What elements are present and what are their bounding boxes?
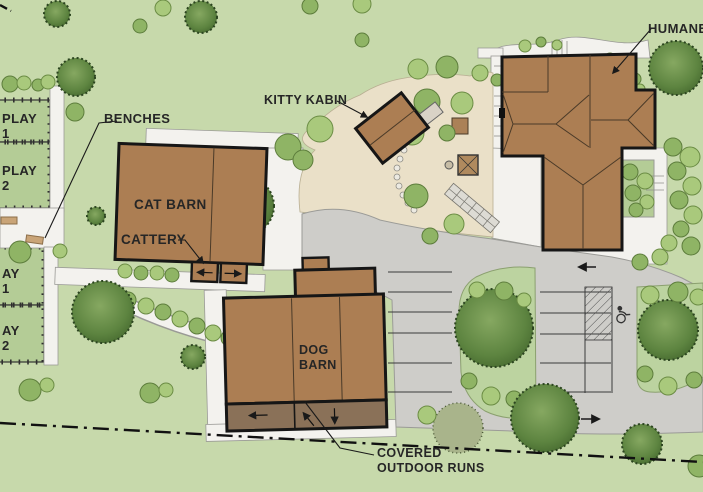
- tree-shrub: [637, 366, 653, 382]
- tree-canopy: [44, 1, 70, 27]
- label-cat-barn: CAT BARN: [134, 197, 207, 212]
- tree-shrub: [472, 65, 488, 81]
- tree-shrub: [2, 76, 18, 92]
- tree-shrub: [461, 373, 477, 389]
- tree-shrub: [41, 75, 55, 89]
- tree-shrub: [641, 286, 659, 304]
- tree-shrub: [625, 185, 641, 201]
- tree-shrub: [155, 304, 171, 320]
- tree-shrub: [552, 40, 562, 50]
- label-covered-outdoor-runs: COVEREDOUTDOOR RUNS: [377, 446, 485, 476]
- tree-shrub: [637, 173, 653, 189]
- tree-shrub: [9, 241, 31, 263]
- site-plan: HUMANE KITTY KABIN CAT BARN CATTERY DOGB…: [0, 0, 703, 492]
- tree-shrub: [159, 383, 173, 397]
- site-plan-drawing: [0, 0, 703, 492]
- tree-shrub: [422, 228, 438, 244]
- tree-shrub: [66, 103, 84, 121]
- tree-shrub: [408, 59, 428, 79]
- tree-shrub: [205, 325, 221, 341]
- tree-shrub: [659, 377, 677, 395]
- tree-shrub: [118, 264, 132, 278]
- label-play-yard-4: AY2: [2, 323, 20, 353]
- tree-canopy: [57, 58, 95, 96]
- label-benches: BENCHES: [104, 111, 170, 126]
- tree-shrub: [418, 406, 436, 424]
- tree-shrub: [536, 37, 546, 47]
- tree-shrub: [302, 0, 318, 14]
- tree-canopy: [72, 281, 134, 343]
- tree-shrub: [670, 191, 688, 209]
- tree-shrub: [684, 206, 702, 224]
- tree-canopy: [181, 345, 205, 369]
- tree-shrub: [150, 266, 164, 280]
- label-play-yard-1: PLAY1: [2, 111, 37, 141]
- tree-shrub: [469, 282, 485, 298]
- tree-shrub: [451, 92, 473, 114]
- tree-shrub: [682, 237, 700, 255]
- label-humane-society: HUMANE: [648, 21, 703, 36]
- tree-canopy: [511, 384, 579, 452]
- tree-shrub: [40, 378, 54, 392]
- tree-shrub: [165, 268, 179, 282]
- tree-shrub: [307, 116, 333, 142]
- tree-canopy: [649, 41, 703, 95]
- tree-shrub: [293, 150, 313, 170]
- tree-shrub: [155, 0, 171, 16]
- label-play-yard-2: PLAY2: [2, 163, 37, 193]
- tree-shrub: [482, 387, 500, 405]
- tree-shrub: [439, 125, 455, 141]
- tree-shrub: [632, 254, 648, 270]
- label-cattery: CATTERY: [121, 232, 186, 247]
- tree-shrub: [673, 221, 689, 237]
- label-kitty-kabin: KITTY KABIN: [264, 93, 347, 108]
- tree-shrub: [622, 164, 638, 180]
- tree-shrub: [661, 235, 677, 251]
- label-dog-barn: DOGBARN: [299, 343, 337, 373]
- tree-shrub: [19, 379, 41, 401]
- tree-shrub: [138, 298, 154, 314]
- tree-shrub: [133, 19, 147, 33]
- tree-shrub: [436, 56, 458, 78]
- tree-shrub: [444, 214, 464, 234]
- tree-shrub: [53, 244, 67, 258]
- tree-shrub: [690, 289, 703, 305]
- tree-shrub: [519, 40, 531, 52]
- tree-shrub: [664, 138, 682, 156]
- tree-canopy: [185, 1, 217, 33]
- tree-shrub: [629, 203, 643, 217]
- tree-shrub: [686, 372, 702, 388]
- tree-shrub: [189, 318, 205, 334]
- tree-shrub: [404, 184, 428, 208]
- tree-shrub: [140, 383, 160, 403]
- label-play-yard-3: AY1: [2, 266, 20, 296]
- tree-shrub: [134, 266, 148, 280]
- tree-shrub: [683, 177, 701, 195]
- tree-canopy: [87, 207, 105, 225]
- tree-shrub: [172, 311, 188, 327]
- tree-shrub: [495, 282, 513, 300]
- tree-shrub: [668, 162, 686, 180]
- tree-shrub: [355, 33, 369, 47]
- tree-shrub: [17, 76, 31, 90]
- tree-canopy: [638, 300, 698, 360]
- tree-shrub: [517, 293, 531, 307]
- tree-shrub: [353, 0, 371, 13]
- tree-shrub: [652, 249, 668, 265]
- tree-shrub: [668, 282, 688, 302]
